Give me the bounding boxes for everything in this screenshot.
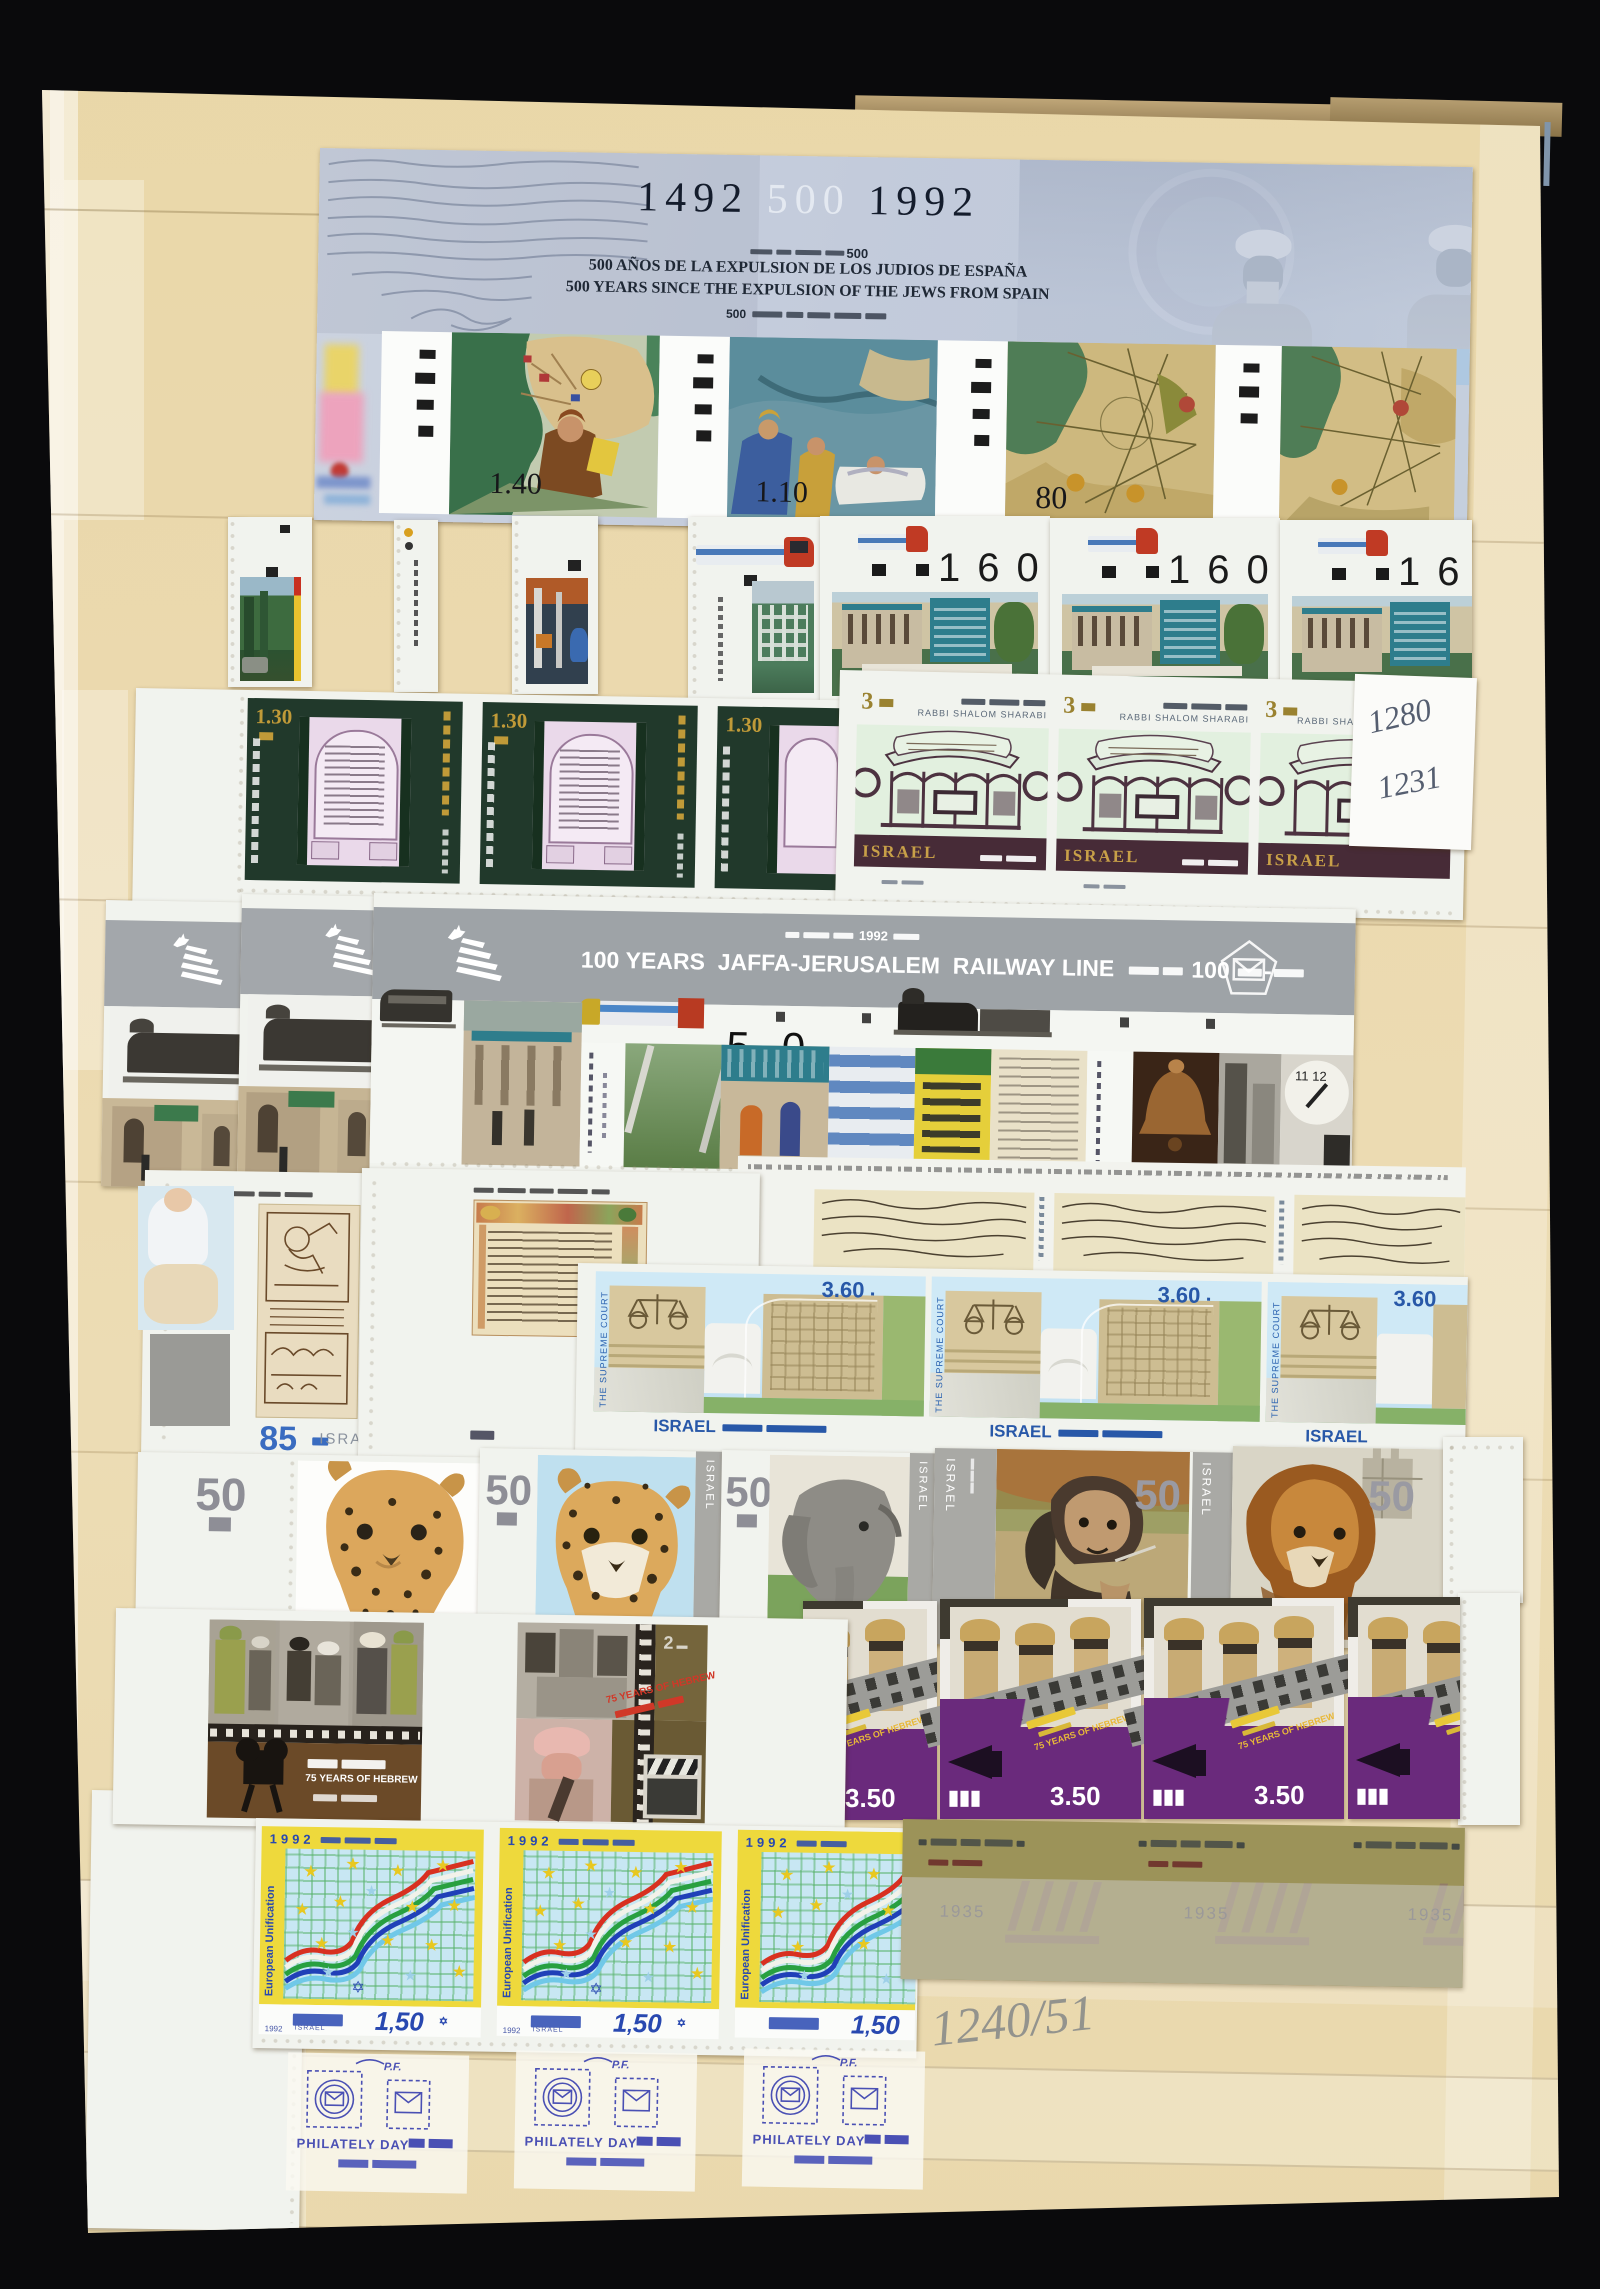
svg-text:★: ★ [583,1856,599,1875]
svg-text:★: ★ [603,1884,617,1901]
svg-text:★: ★ [856,1934,872,1953]
svg-text:★: ★ [571,1894,587,1913]
svg-text:P.F.: P.F. [612,2059,630,2071]
svg-text:★: ★ [628,1863,644,1882]
svg-text:80: 80 [1035,479,1068,516]
svg-text:★: ★ [779,1865,795,1884]
svg-text:★: ★ [345,1854,361,1873]
svg-text:★: ★ [689,1964,705,1983]
svg-text:★: ★ [673,1858,689,1877]
svg-text:★: ★ [541,1863,557,1882]
svg-text:★: ★ [790,1937,806,1956]
svg-text:★: ★ [685,1898,701,1917]
svg-text:★: ★ [333,1892,349,1911]
svg-text:★: ★ [403,1967,417,1984]
svg-text:★: ★ [294,1900,310,1919]
svg-text:★: ★ [662,1937,678,1956]
svg-text:★: ★ [303,1862,319,1881]
svg-text:★: ★ [841,1886,855,1903]
svg-text:★: ★ [532,1901,548,1920]
svg-text:★: ★ [314,1934,330,1953]
svg-text:★: ★ [809,1896,825,1915]
svg-text:★: ★ [446,1896,462,1915]
svg-text:★: ★ [866,1865,882,1884]
svg-text:P.F.: P.F. [840,2057,858,2069]
svg-text:★: ★ [770,1903,786,1922]
svg-text:★: ★ [584,1926,598,1943]
svg-text:★: ★ [435,1856,451,1875]
svg-text:★: ★ [641,1969,655,1986]
svg-text:★: ★ [390,1861,406,1880]
svg-text:★: ★ [797,1968,811,1985]
svg-text:★: ★ [879,1971,893,1988]
svg-text:★: ★ [404,1897,420,1916]
svg-text:1.40: 1.40 [489,467,542,501]
svg-text:★: ★ [380,1931,396,1950]
svg-text:P.F.: P.F. [384,2061,402,2073]
svg-text:1.10: 1.10 [755,475,808,509]
svg-text:★: ★ [552,1936,568,1955]
svg-text:★: ★ [618,1933,634,1952]
svg-text:★: ★ [346,1924,360,1941]
svg-text:PHILATELY DAY: PHILATELY DAY [525,2134,638,2151]
svg-text:PHILATELY DAY: PHILATELY DAY [753,2132,866,2149]
svg-text:★: ★ [424,1936,440,1955]
svg-text:★: ★ [821,1858,837,1877]
svg-text:★: ★ [321,1964,335,1981]
svg-text:★: ★ [559,1966,573,1983]
svg-text:★: ★ [365,1883,379,1900]
svg-text:★: ★ [451,1962,467,1981]
svg-text:★: ★ [642,1899,658,1918]
svg-text:★: ★ [880,1901,896,1920]
svg-text:PHILATELY DAY: PHILATELY DAY [297,2136,410,2153]
